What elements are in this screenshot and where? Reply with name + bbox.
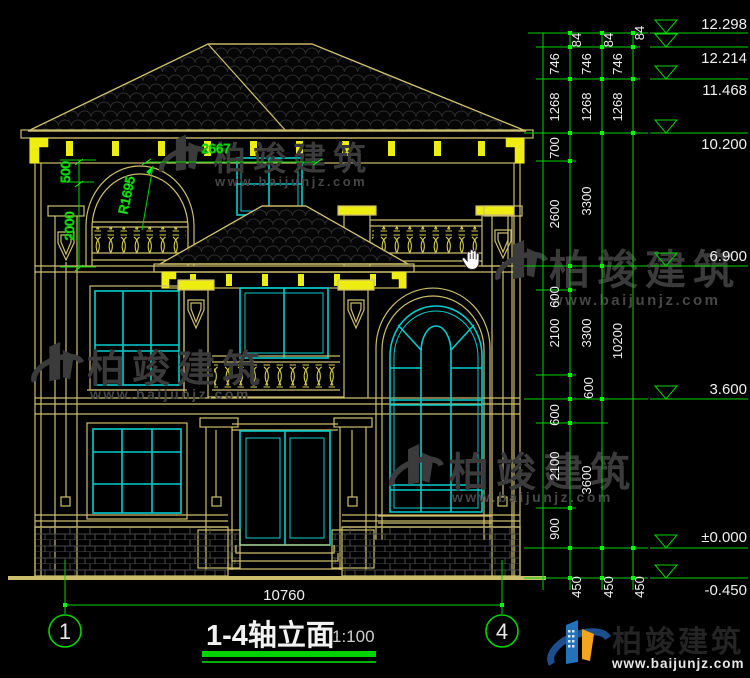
brand-url: www.baijunjz.com bbox=[611, 656, 745, 671]
brand-logo: 柏竣建筑 www.baijunjz.com bbox=[551, 620, 745, 671]
watermark-text: 柏竣建筑 bbox=[87, 349, 267, 391]
watermark-text: 柏竣建筑 bbox=[213, 140, 373, 177]
dim-label: 84 bbox=[601, 33, 616, 47]
dim-label: 746 bbox=[610, 53, 625, 75]
drawing-scale: 1:100 bbox=[332, 627, 375, 646]
elevation-value: 12.298 bbox=[701, 16, 747, 33]
dim-label: 450 bbox=[632, 576, 647, 598]
dim-label: 84 bbox=[632, 26, 647, 40]
watermark-url: www.baijunjz.com bbox=[214, 174, 367, 189]
watermark-url: www.baijunjz.com bbox=[89, 386, 251, 402]
main-roof bbox=[28, 44, 526, 131]
dim-label: 1268 bbox=[579, 93, 594, 122]
elevation-value: 3.600 bbox=[709, 381, 747, 398]
dim-label: 3300 bbox=[579, 187, 594, 216]
dim-label: 2600 bbox=[547, 200, 562, 229]
dim-left-2000: 2000 bbox=[62, 212, 77, 241]
dim-label: 600 bbox=[547, 404, 562, 426]
dim-label: 2100 bbox=[547, 452, 562, 481]
dim-label: 600 bbox=[547, 286, 562, 308]
base-and-steps bbox=[8, 527, 546, 580]
elevation-value: 6.900 bbox=[709, 248, 747, 265]
dim-label: 1268 bbox=[610, 93, 625, 122]
axis-number: 1 bbox=[59, 619, 71, 644]
dim-left-500: 500 bbox=[58, 161, 73, 183]
arch-opening bbox=[86, 166, 194, 266]
axis-bubble-4: 4 bbox=[486, 615, 518, 647]
dim-label: 10200 bbox=[610, 323, 625, 359]
dim-label: 3600 bbox=[579, 466, 594, 495]
dim-arch-width: 2667 bbox=[202, 141, 231, 156]
dim-label: 450 bbox=[601, 576, 616, 598]
dim-label: 600 bbox=[581, 377, 596, 399]
entrance-door bbox=[232, 424, 338, 545]
elevation-drawing: 柏竣建筑 www.baijunjz.com 柏竣建筑 www.baijunjz.… bbox=[0, 0, 750, 678]
title-underline-thick bbox=[202, 651, 376, 657]
second-floor-centre-window bbox=[240, 288, 328, 358]
porch-pilaster-right bbox=[338, 280, 374, 398]
elevation-value: 12.214 bbox=[701, 50, 747, 67]
cad-viewport[interactable]: 柏竣建筑 www.baijunjz.com 柏竣建筑 www.baijunjz.… bbox=[0, 0, 750, 678]
watermark-url: www.baijunjz.com bbox=[550, 292, 720, 309]
brand-name: 柏竣建筑 bbox=[612, 625, 744, 659]
right-dim-labels: 84 746 1268 700 2600 600 2100 600 600 21… bbox=[547, 26, 647, 598]
dim-arch-radius: R1695 bbox=[115, 175, 138, 216]
elevation-value: -0.450 bbox=[704, 582, 747, 599]
dim-label: 1268 bbox=[547, 93, 562, 122]
elevation-value: ±0.000 bbox=[701, 529, 747, 546]
dim-label: 3300 bbox=[579, 319, 594, 348]
dim-label: 84 bbox=[569, 33, 584, 47]
watermark-3: 柏竣建筑 www.baijunjz.com bbox=[34, 343, 267, 402]
bottom-dim-value: 10760 bbox=[263, 587, 305, 604]
dim-label: 746 bbox=[579, 53, 594, 75]
axis-bubble-1: 1 bbox=[49, 615, 81, 647]
dim-label: 746 bbox=[547, 53, 562, 75]
dim-label: 2100 bbox=[547, 319, 562, 348]
title-underline-thin bbox=[202, 661, 376, 663]
elevation-value: 10.200 bbox=[701, 136, 747, 153]
dim-label: 900 bbox=[547, 518, 562, 540]
first-floor-left-window bbox=[87, 423, 187, 519]
elevation-value: 11.468 bbox=[702, 82, 747, 99]
drawing-title: 1-4轴立面 bbox=[206, 618, 335, 652]
dim-label: 450 bbox=[569, 576, 584, 598]
dim-label: 700 bbox=[547, 137, 562, 159]
watermark-2: 柏竣建筑 www.baijunjz.com bbox=[498, 241, 741, 309]
watermark-4: 柏竣建筑 www.baijunjz.com bbox=[392, 445, 637, 505]
axis-number: 4 bbox=[496, 619, 508, 644]
drawing-title-block: 1-4轴立面 1:100 bbox=[202, 618, 376, 663]
